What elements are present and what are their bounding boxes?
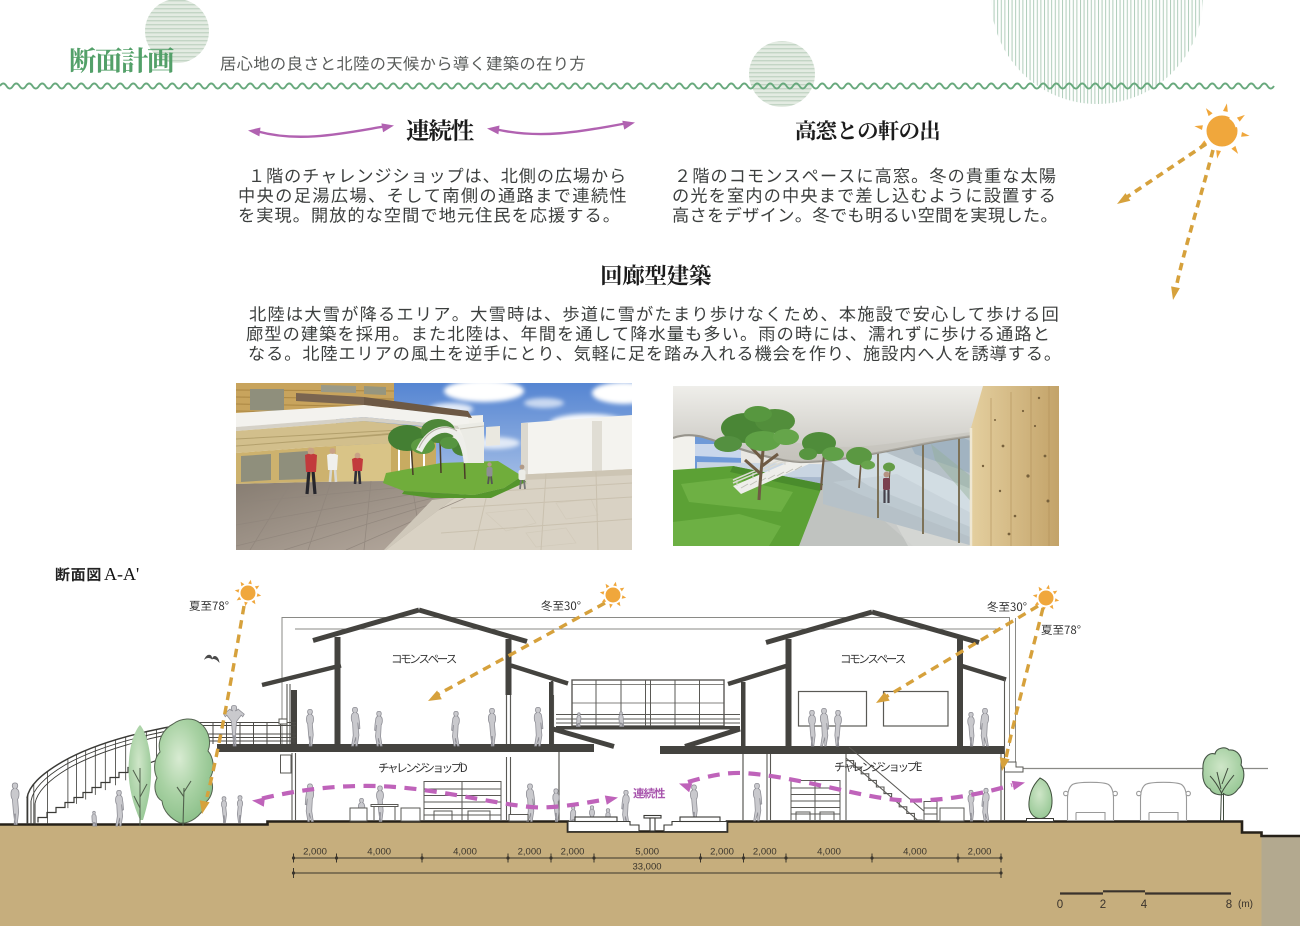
svg-text:8: 8: [1226, 899, 1232, 911]
svg-text:2,000: 2,000: [303, 847, 327, 858]
svg-text:4,000: 4,000: [367, 847, 391, 858]
svg-text:4: 4: [1141, 899, 1148, 911]
svg-text:2,000: 2,000: [753, 847, 777, 858]
svg-text:2,000: 2,000: [968, 847, 992, 858]
svg-text:2: 2: [1100, 899, 1106, 911]
svg-text:33,000: 33,000: [632, 862, 661, 873]
svg-text:(m): (m): [1238, 899, 1253, 910]
svg-text:2,000: 2,000: [561, 847, 585, 858]
svg-text:2,000: 2,000: [518, 847, 542, 858]
svg-text:4,000: 4,000: [453, 847, 477, 858]
svg-text:4,000: 4,000: [903, 847, 927, 858]
svg-text:5,000: 5,000: [635, 847, 659, 858]
svg-text:2,000: 2,000: [710, 847, 734, 858]
svg-text:A-A': A-A': [104, 564, 139, 584]
svg-text:4,000: 4,000: [817, 847, 841, 858]
svg-text:0: 0: [1057, 899, 1063, 911]
